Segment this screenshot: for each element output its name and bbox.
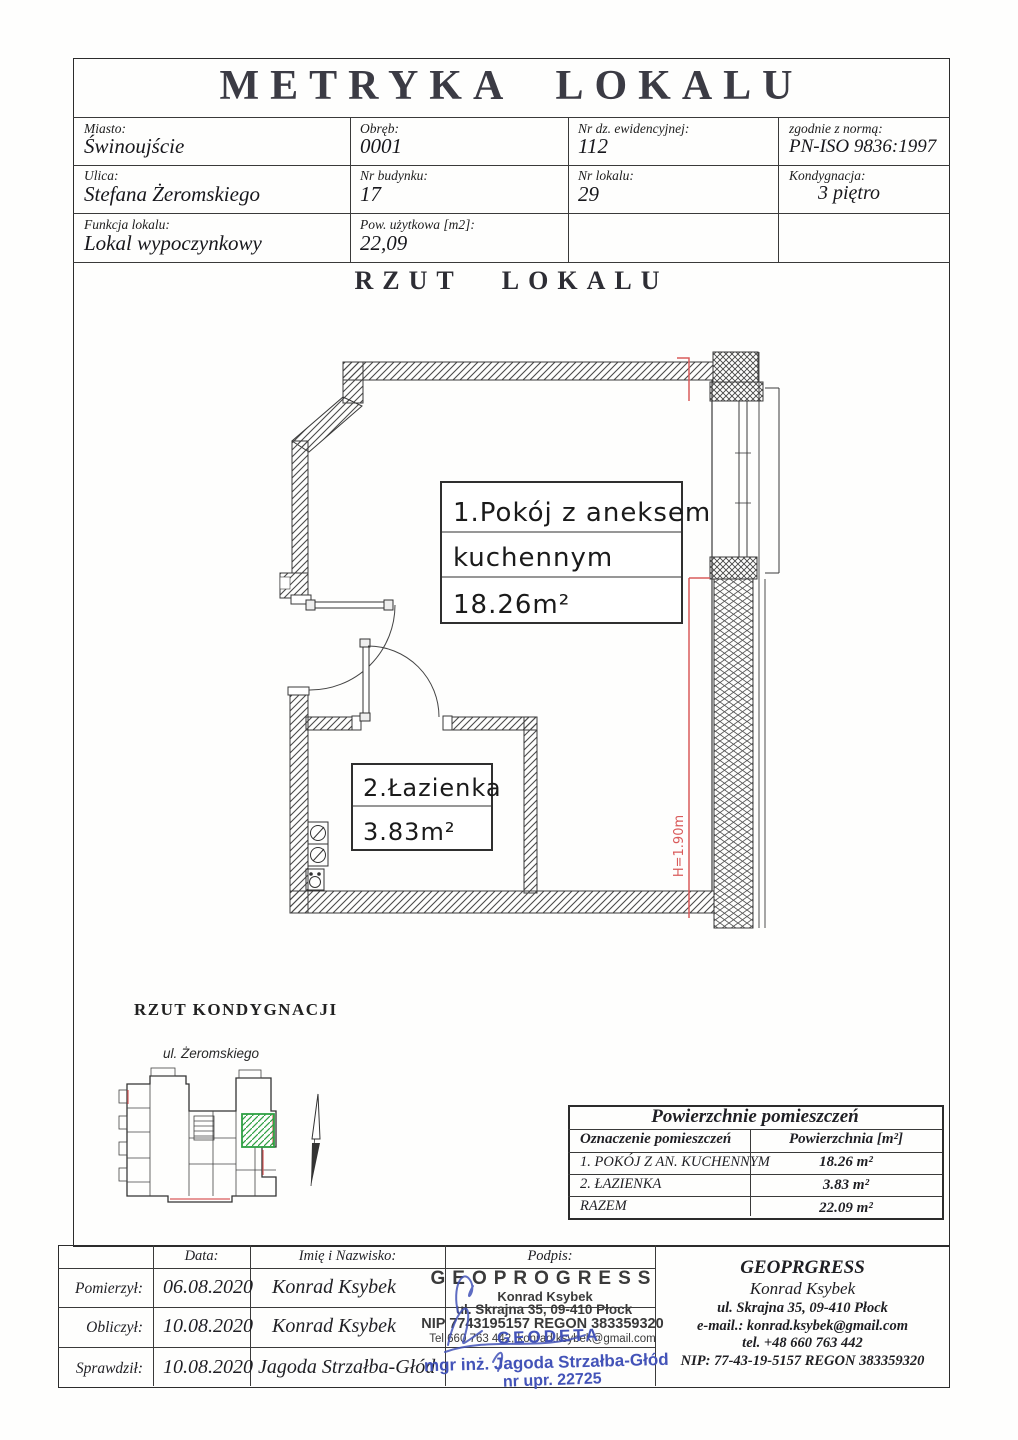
building-plan-svg xyxy=(105,1060,345,1210)
height-note: H=1.90m xyxy=(672,815,687,877)
footer-row-date: 10.08.2020 xyxy=(163,1356,253,1379)
field-value-pow: 22,09 xyxy=(360,231,407,256)
area-table-line xyxy=(568,1196,942,1197)
room2-name: 2.Łazienka xyxy=(363,774,502,802)
room1-area: 18.26m² xyxy=(453,590,570,620)
room2-area: 3.83m² xyxy=(363,818,455,846)
area-row-value: 18.26 m² xyxy=(750,1154,942,1171)
grid-line xyxy=(73,213,950,214)
page-title: METRYKA LOKALU xyxy=(73,62,950,110)
entrance-door xyxy=(306,600,395,690)
grid-line xyxy=(350,117,351,262)
metryka-lokalu-document: METRYKA LOKALU Miasto: Świnoujście Obręb… xyxy=(0,0,1018,1440)
area-table-col1-header: Oznaczenie pomieszczeń xyxy=(580,1131,731,1148)
section-title-rzut-lokalu: RZUT LOKALU xyxy=(73,266,950,296)
bathroom-fixtures xyxy=(306,822,328,890)
room1-label-box: 1.Pokój z aneksem kuchennym 18.26m² xyxy=(441,482,711,623)
company-email: e-mail.: konrad.ksybek@gmail.com xyxy=(655,1318,950,1336)
room1-name-line2: kuchennym xyxy=(453,543,613,573)
blue-stamp-geodeta: GEODETA xyxy=(497,1325,601,1349)
footer-line xyxy=(153,1245,154,1386)
area-row-name: 1. POKÓJ Z AN. KUCHENNYM xyxy=(580,1154,770,1171)
area-row-name: 2. ŁAZIENKA xyxy=(580,1176,661,1193)
grid-line xyxy=(73,262,950,263)
field-value-funkcja: Lokal wypoczynkowy xyxy=(84,231,262,256)
footer-row-name: Konrad Ksybek xyxy=(272,1315,396,1338)
company-info-box: GEOPRGRESS Konrad Ksybek ul. Skrajna 35,… xyxy=(655,1256,950,1371)
highlighted-unit xyxy=(242,1114,274,1147)
footer-row-label: Obliczył: xyxy=(58,1319,143,1337)
grid-line xyxy=(73,117,950,118)
window-wall-assembly xyxy=(710,352,779,928)
area-row-value: 3.83 m² xyxy=(750,1177,942,1194)
room1-name-line1: 1.Pokój z aneksem xyxy=(453,498,711,528)
field-value-nr-budynku: 17 xyxy=(360,182,381,207)
footer-row-date: 10.08.2020 xyxy=(163,1315,253,1338)
blue-stamp-license: nr upr. 22725 xyxy=(503,1370,602,1391)
footer-header-data: Data: xyxy=(153,1248,250,1265)
section-title-rzut-kondygnacji: RZUT KONDYGNACJI xyxy=(134,1000,338,1020)
floor-plan-svg: H=1.90m 1.Pokój z aneksem kuchennym 18.2… xyxy=(250,335,810,950)
area-table-line xyxy=(568,1129,942,1130)
company-address: ul. Skrajna 35, 09-410 Płock xyxy=(655,1300,950,1318)
footer-row-label: Sprawdził: xyxy=(58,1360,143,1378)
grid-line xyxy=(778,117,779,262)
company-person: Konrad Ksybek xyxy=(655,1279,950,1300)
bathroom-door xyxy=(360,639,439,721)
area-table-line xyxy=(568,1152,942,1153)
company-name: GEOPRGRESS xyxy=(655,1256,950,1279)
area-table-col2-header: Powierzchnia [m²] xyxy=(750,1131,942,1148)
company-nip: NIP: 77-43-19-5157 REGON 383359320 xyxy=(655,1353,950,1371)
area-table-line xyxy=(568,1174,942,1175)
footer-row-name: Jagoda Strzałba-Głód xyxy=(258,1356,435,1379)
footer-row-name: Konrad Ksybek xyxy=(272,1276,396,1299)
room2-label-box: 2.Łazienka 3.83m² xyxy=(352,764,502,850)
field-label-norma: zgodnie z normą: xyxy=(789,121,883,137)
field-value-kondygnacja: 3 piętro xyxy=(818,182,880,205)
area-row-value: 22.09 m² xyxy=(750,1200,942,1217)
grid-line xyxy=(568,117,569,262)
company-tel: tel. +48 660 763 442 xyxy=(655,1335,950,1353)
field-value-miasto: Świnoujście xyxy=(84,134,184,159)
area-row-name: RAZEM xyxy=(580,1198,627,1215)
north-arrow-icon xyxy=(311,1094,320,1186)
footer-header-name: Imię i Nazwisko: xyxy=(250,1248,445,1265)
plan-walls xyxy=(280,362,714,913)
footer-row-label: Pomierzył: xyxy=(58,1280,143,1298)
footer-row-date: 06.08.2020 xyxy=(163,1276,253,1299)
field-value-nr-dz: 112 xyxy=(578,134,608,159)
field-value-obreb: 0001 xyxy=(360,134,402,159)
area-table-title: Powierzchnie pomieszczeń xyxy=(568,1106,942,1128)
field-value-nr-lokalu: 29 xyxy=(578,182,599,207)
grid-line xyxy=(73,165,950,166)
field-value-norma: PN-ISO 9836:1997 xyxy=(789,136,936,158)
field-value-ulica: Stefana Żeromskiego xyxy=(84,182,260,207)
street-label: ul. Żeromskiego xyxy=(163,1046,259,1061)
